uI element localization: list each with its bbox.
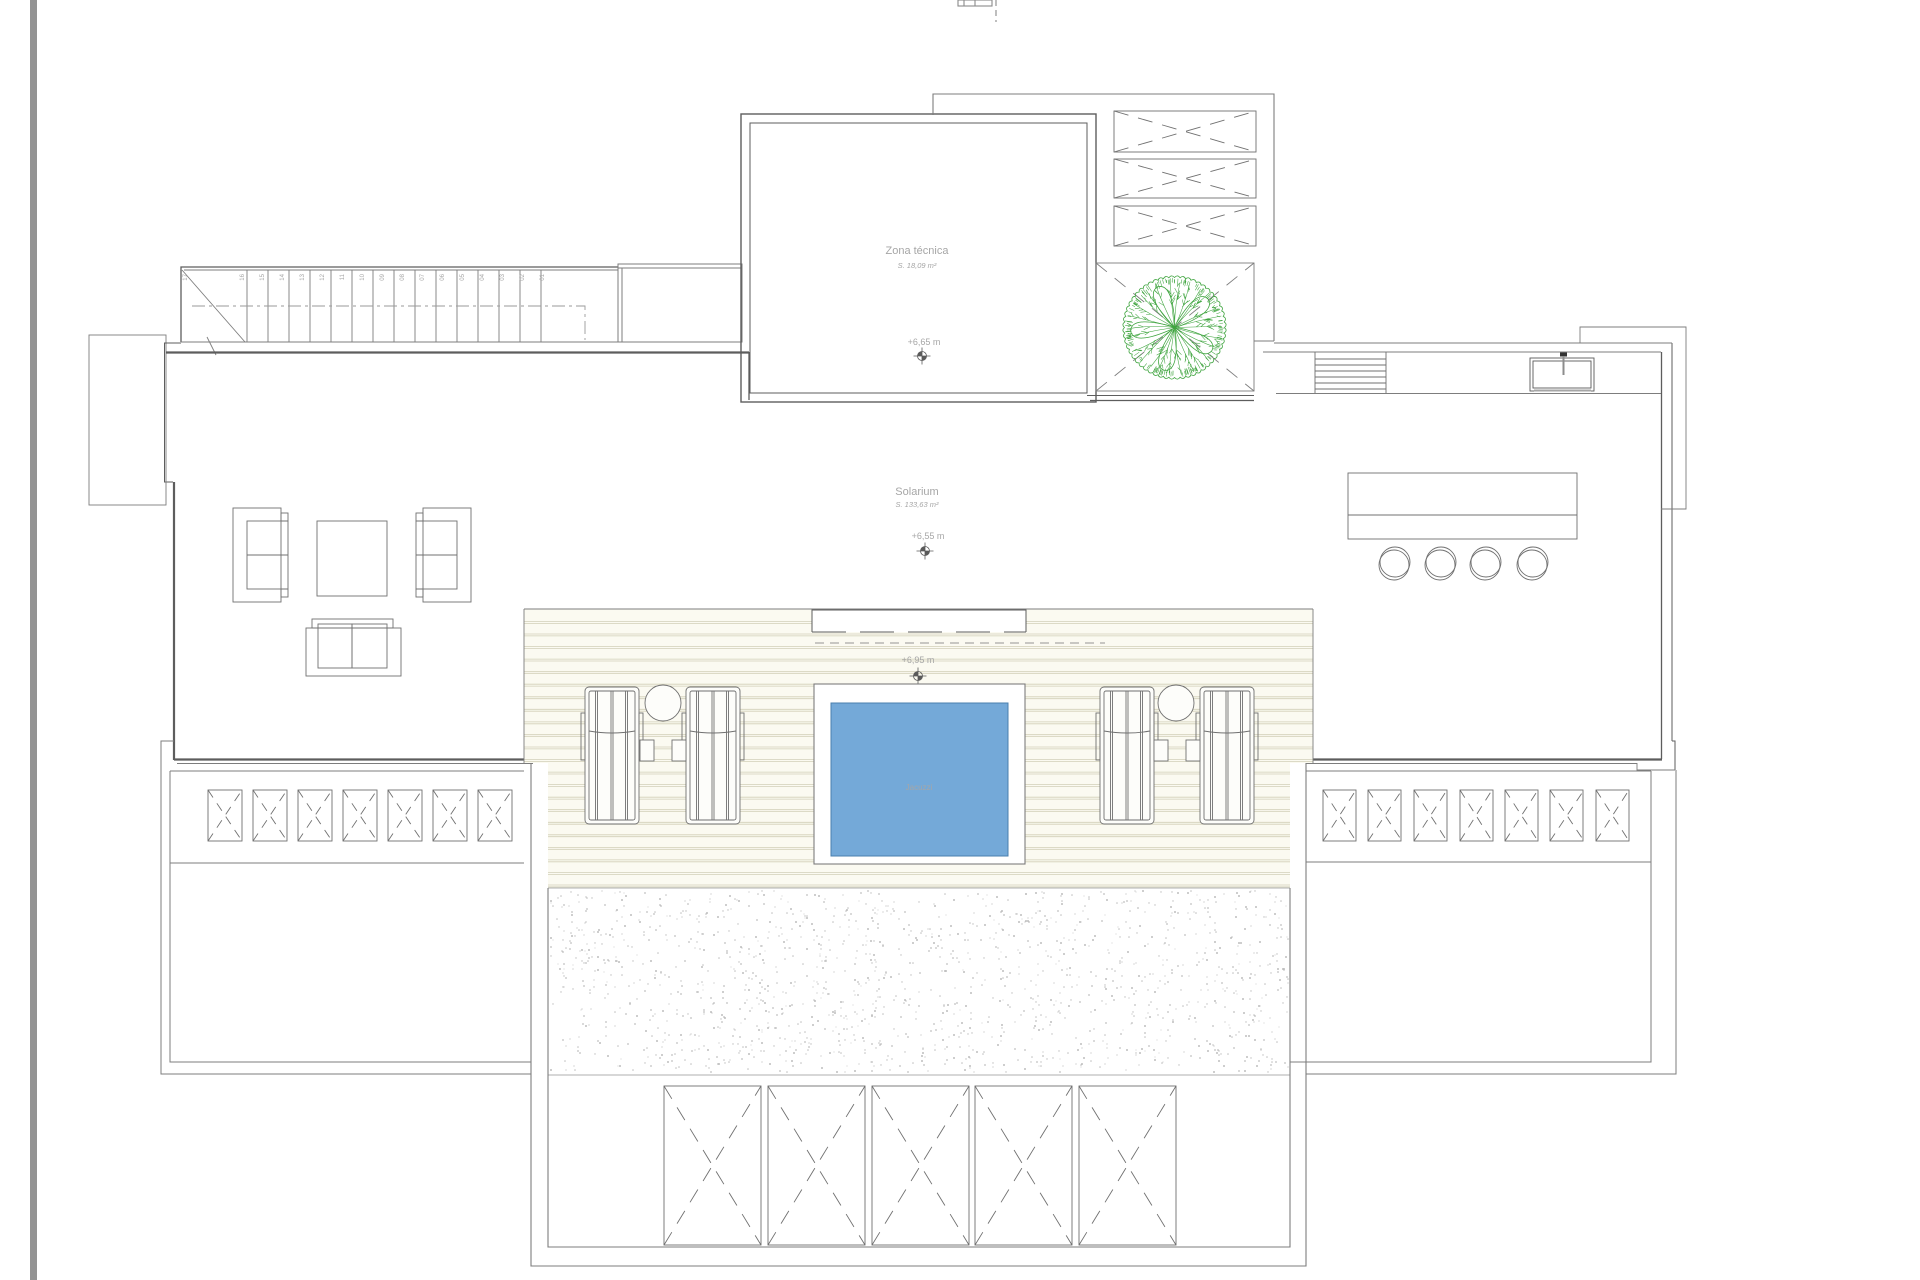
svg-text:16: 16 bbox=[240, 273, 246, 280]
svg-text:Jacuzzi: Jacuzzi bbox=[906, 783, 933, 792]
svg-text:Zona técnica: Zona técnica bbox=[886, 245, 950, 257]
svg-text:04: 04 bbox=[480, 273, 486, 280]
svg-text:S. 133,63 m²: S. 133,63 m² bbox=[896, 500, 939, 509]
svg-text:09: 09 bbox=[380, 273, 386, 280]
svg-text:08: 08 bbox=[400, 273, 406, 280]
svg-text:12: 12 bbox=[320, 273, 326, 280]
svg-text:07: 07 bbox=[420, 273, 426, 280]
svg-text:10: 10 bbox=[360, 273, 366, 280]
svg-text:14: 14 bbox=[280, 273, 286, 280]
svg-text:01: 01 bbox=[540, 273, 546, 280]
svg-text:+6,95 m: +6,95 m bbox=[902, 655, 935, 665]
svg-text:03: 03 bbox=[500, 273, 506, 280]
svg-text:15: 15 bbox=[260, 273, 266, 280]
svg-text:+6,65 m: +6,65 m bbox=[908, 337, 941, 347]
svg-text:02: 02 bbox=[520, 273, 526, 280]
svg-text:06: 06 bbox=[440, 273, 446, 280]
svg-text:13: 13 bbox=[300, 273, 306, 280]
svg-text:+6,55 m: +6,55 m bbox=[912, 531, 945, 541]
svg-text:Solarium: Solarium bbox=[895, 486, 938, 498]
svg-text:S. 18,09 m²: S. 18,09 m² bbox=[898, 261, 937, 270]
svg-text:11: 11 bbox=[340, 273, 346, 280]
svg-text:05: 05 bbox=[460, 273, 466, 280]
